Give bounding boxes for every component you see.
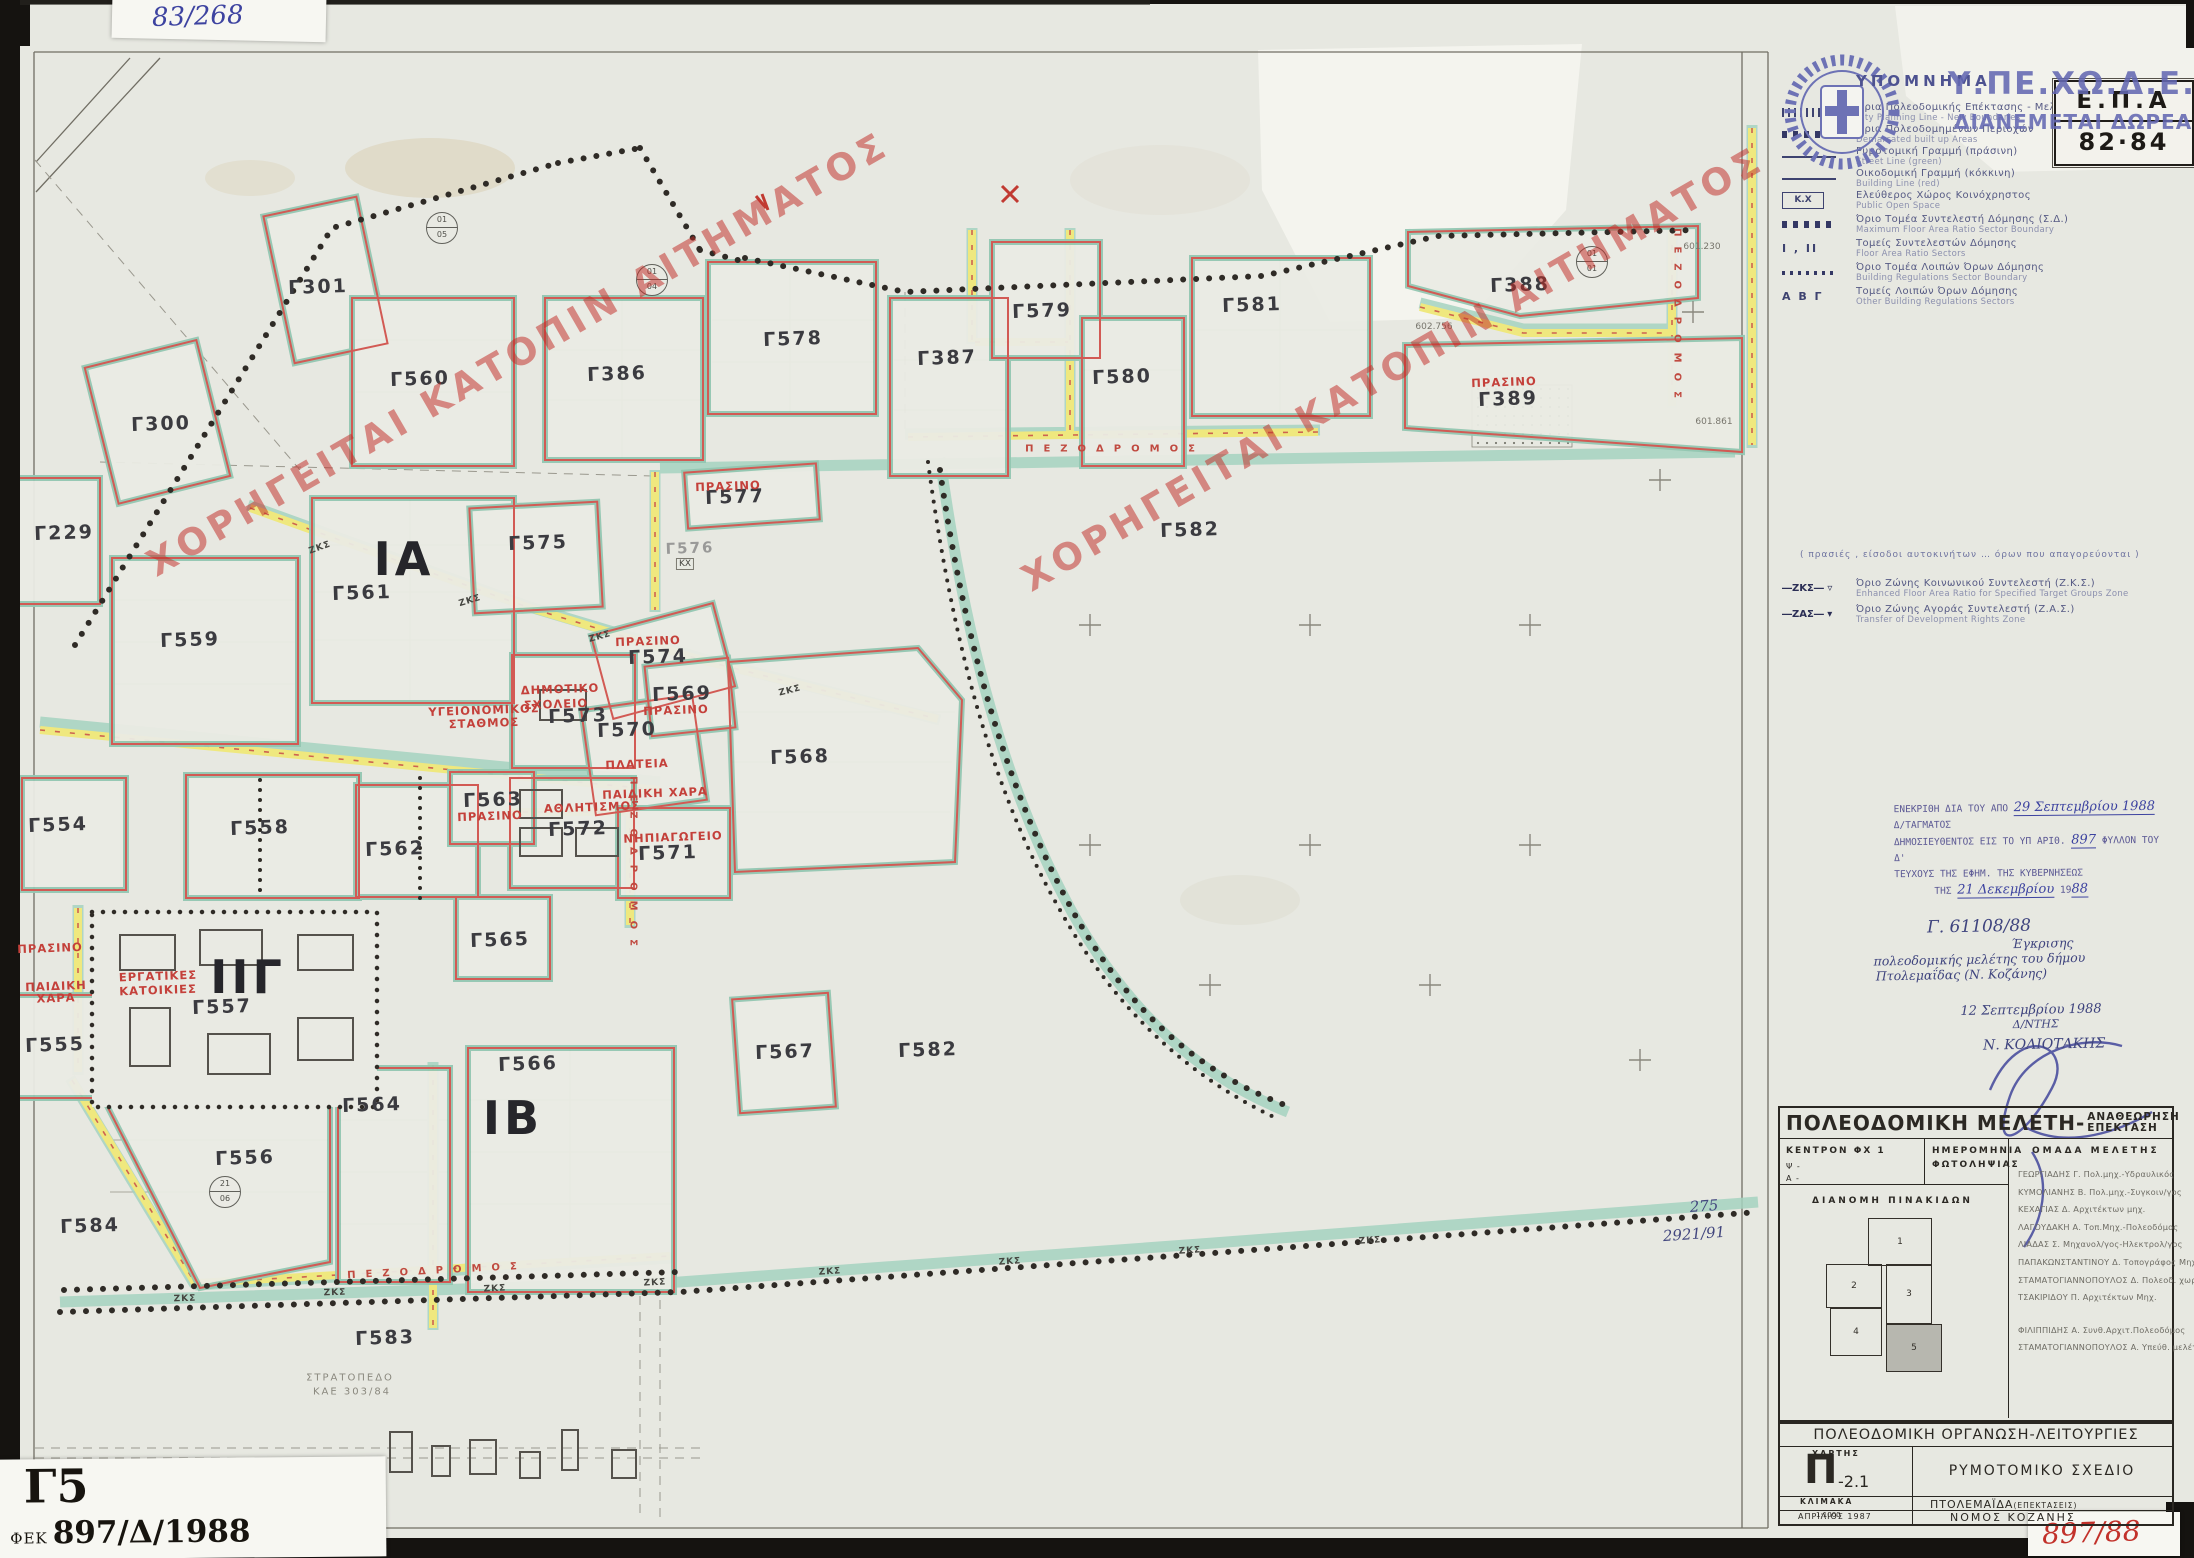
legend-item-text: Ελεύθερος Χώρος ΚοινόχρηστοςPublic Open …: [1856, 190, 2031, 211]
zone-boundary-icon: ―ΖΚΣ― ▿: [1782, 583, 1844, 594]
sheet-index-2: 2: [1826, 1264, 1882, 1308]
military-camp-code: ΚΑΕ 303/84: [313, 1387, 391, 1398]
block-label-Γ555-32: Γ555: [25, 1033, 86, 1057]
team-member: ΣΤΑΜΑΤΟΓΙΑΝΝΟΠΟΥΛΟΣ Α. Υπεύθ. μελέτης: [2018, 1339, 2170, 1357]
handwritten-annotation-0: 275: [1689, 1196, 1719, 1216]
block-label-Γ576-15: Γ576: [665, 538, 714, 558]
zone-symbol: ―ΖΑΣ― ▾: [1782, 609, 1832, 620]
legend-item-greek: Ελεύθερος Χώρος Κοινόχρηστος: [1856, 190, 2031, 201]
landuse-label-15: ΧΑΡΑ: [36, 990, 76, 1005]
legend-item: Όριο Τομέα Συντελεστή Δόμησης (Σ.Δ.)Maxi…: [1782, 214, 2068, 235]
stamp-l4b: 19: [2060, 885, 2072, 896]
block-label-Γ301-1: Γ301: [288, 275, 349, 299]
organization-title: ΠΟΛΕΟΔΟΜΙΚΗ ΟΡΓΑΝΩΣΗ-ΛΕΙΤΟΥΡΓΙΕΣ: [1780, 1424, 2172, 1447]
block-label-Γ581-8: Γ581: [1222, 293, 1283, 317]
landuse-label-16: ΠΡΑΣΙΝΟ: [1471, 374, 1537, 390]
block-label-Γ389-10: Γ389: [1478, 387, 1539, 411]
text-icon: Ι , ΙΙ: [1782, 242, 1818, 255]
cell-kentron: ΚΕΝΤΡΟΝ ΦΧ 1: [1786, 1146, 1886, 1156]
sheet-index-diagram: 12345: [1802, 1212, 2002, 1412]
legend-zone-text: Όριο Ζώνης Κοινωνικού Συντελεστή (Ζ.Κ.Σ.…: [1856, 578, 2129, 599]
landuse-label-13: ΠΡΑΣΙΝΟ: [17, 940, 83, 956]
landuse-label-12: ΚΑΤΟΙΚΙΕΣ: [119, 982, 197, 999]
block-label-Γ582-25: Γ582: [898, 1038, 959, 1062]
zks-boundary-label-0: ΖΚΣ: [174, 1294, 197, 1305]
legend-item-text: Τομείς Συντελεστών ΔόμησηςFloor Area Rat…: [1856, 238, 2017, 259]
prefecture: ΝΟΜΟΣ ΚΟΖΑΝΗΣ: [1950, 1511, 2076, 1524]
zks-boundary-label-4: ΖΚΣ: [818, 1266, 841, 1278]
note-role: Δ/ΝΤΗΣ: [2013, 1015, 2173, 1031]
block-label-Γ578-4: Γ578: [763, 327, 824, 351]
legend-item-text: Όριο Τομέα Συντελεστή Δόμησης (Σ.Δ.)Maxi…: [1856, 214, 2068, 235]
legend-note: ( πρασιές , είσοδοι αυτοκινήτων … όρων π…: [1800, 550, 2140, 560]
line-red-icon: [1782, 178, 1836, 180]
legend-item-greek: Τομείς Λοιπών Όρων Δόμησης: [1856, 286, 2018, 297]
legend-item-english: Public Open Space: [1856, 201, 2031, 211]
block-label-Γ580-7: Γ580: [1092, 365, 1153, 389]
public-open-space-label: ΚΧ: [676, 558, 694, 570]
military-camp-label: ΣΤΡΑΤΟΠΕΔΟ: [306, 1373, 394, 1384]
legend-item-english: Maximum Floor Area Ratio Sector Boundary: [1856, 225, 2068, 235]
zks-boundary-label-2: ΖΚΣ: [483, 1283, 506, 1294]
note-signatory: Ν. ΚΟΛΙΟΤΑΚΗΣ: [1983, 1034, 2173, 1053]
cell-date-label2: ΦΩΤΟΛΗΨΙΑΣ: [1932, 1160, 2020, 1170]
zone-symbol: ―ΖΚΣ― ▿: [1782, 583, 1832, 594]
legend-zone-greek: Όριο Ζώνης Κοινωνικού Συντελεστή (Ζ.Κ.Σ.…: [1856, 578, 2129, 589]
line-red-symbol-icon: [1782, 178, 1844, 180]
team-member: ΣΤΑΜΑΤΟΓΙΑΝΝΟΠΟΥΛΟΣ Δ. Πολεοδ. χωροτ.: [2018, 1272, 2170, 1290]
zone-label-ΙΙΓ: ΙΙΓ: [210, 950, 286, 1004]
legend-zone-english: Transfer of Development Rights Zone: [1856, 615, 2075, 625]
distribution-overprint: ΔΙΑΝΕΜΕΤΑΙ ΔΩΡΕΑΝ: [1954, 110, 2194, 134]
landuse-label-8: ΠΡΑΣΙΝΟ: [695, 478, 761, 494]
legend-item-english: Other Building Regulations Sectors: [1856, 297, 2018, 307]
dots-sm-symbol-icon: [1782, 271, 1844, 275]
block-label-Γ558-27: Γ558: [230, 816, 291, 840]
title-block-header: ΠΟΛΕΟΔΟΜΙΚΗ ΜΕΛΕΤΗ- ΑΝΑΘΕΩΡΗΣΗ ΕΠΕΚΤΑΣΗ: [1780, 1108, 2172, 1139]
stamp-l1b: Δ/ΤΑΓΜΑΤΟΣ: [1894, 820, 1951, 831]
landuse-label-6: ΑΘΛΗΤΙΣΜΟΣ: [544, 798, 641, 815]
dots-sm-icon: [1782, 271, 1836, 275]
block-label-Γ567-36: Γ567: [755, 1040, 816, 1064]
team-member: ΛΑΓΟΥΔΑΚΗ Α. Τοπ.Μηχ.-Πολεοδόμος: [2018, 1219, 2170, 1237]
box-symbol-icon: Κ.Χ: [1782, 192, 1844, 209]
stamp-l4a: ΤΗΣ: [1934, 886, 1951, 897]
stamp-l3: ΤΕΥΧΟΥΣ ΤΗΣ ΕΦΗΜ. ΤΗΣ ΚΥΒΕΡΝΗΣΕΩΣ: [1894, 868, 2083, 881]
title-block: ΠΟΛΕΟΔΟΜΙΚΗ ΜΕΛΕΤΗ- ΑΝΑΘΕΩΡΗΣΗ ΕΠΕΚΤΑΣΗ …: [1778, 1106, 2174, 1422]
zks-boundary-label-10: ΖΚΣ: [588, 629, 613, 645]
team-member: ΛΙΑΔΑΣ Σ. Μηχανολ/γος-Ηλεκτρολ/γος: [2018, 1236, 2170, 1254]
zks-boundary-label-1: ΖΚΣ: [324, 1288, 347, 1299]
dots-lg-icon: [1782, 221, 1836, 228]
block-label-Γ559-12: Γ559: [160, 628, 221, 652]
handwritten-annotation-1: 2921/91: [1662, 1223, 1725, 1245]
block-label-Γ579-6: Γ579: [1012, 299, 1073, 323]
sheet-index-1: 1: [1868, 1218, 1932, 1266]
map-code-number: -2.1: [1838, 1472, 1869, 1491]
circled-ref-top: 21: [210, 1177, 240, 1192]
circled-ref-0: 0105: [426, 212, 458, 244]
stamp-hand-date1: 29 Σεπτεμβρίου 1988: [2014, 799, 2155, 816]
stamp-hand-fek: 897: [2071, 832, 2096, 848]
zks-boundary-label-6: ΖΚΣ: [1178, 1245, 1201, 1257]
stamp-l1a: ΕΝΕΚΡΙΘΗ ΔΙΑ ΤΟΥ ΑΠΟ: [1894, 803, 2008, 815]
zone-label-ΙΑ: ΙΑ: [374, 532, 435, 586]
legend-item-greek: Τομείς Συντελεστών Δόμησης: [1856, 238, 2017, 249]
circled-ref-bottom: 06: [210, 1192, 240, 1206]
team-member: ΚΥΜΟΛΙΑΝΗΣ Β. Πολ.μηχ.-Συγκοιν/γος: [2018, 1184, 2170, 1202]
team-list: ΓΕΩΡΓΙΑΔΗΣ Γ. Πολ.μηχ.-ΥδραυλικόςΚΥΜΟΛΙΑ…: [2018, 1166, 2170, 1357]
study-title: ΠΟΛΕΟΔΟΜΙΚΗ ΜΕΛΕΤΗ-: [1786, 1111, 2085, 1135]
block-label-Γ566-35: Γ566: [498, 1052, 559, 1076]
city-suffix: (ΕΠΕΚΤΑΣΕΙΣ): [2013, 1501, 2077, 1510]
box-icon: Κ.Χ: [1782, 192, 1824, 209]
pedestrian-road-label-1: ΠΕΖΟΔΡΟΜΟΣ: [347, 1261, 527, 1281]
dots-lg-symbol-icon: [1782, 221, 1844, 228]
zone-label-ΙΒ: ΙΒ: [483, 1091, 543, 1145]
text-symbol-icon: Ι , ΙΙ: [1782, 242, 1844, 255]
stamp-l2a: ΔΗΜΟΣΙΕΥΘΕΝΤΟΣ ΕΙΣ ΤΟ ΥΠ ΑΡΙΘ.: [1894, 836, 2066, 848]
block-label-Γ565-30: Γ565: [470, 928, 531, 952]
legend-item-greek: Όριο Τομέα Συντελεστή Δόμησης (Σ.Δ.): [1856, 214, 2068, 225]
block-label-Γ583-38: Γ583: [355, 1326, 416, 1350]
sheet-index-5: 5: [1886, 1324, 1942, 1372]
zks-boundary-label-9: ΖΚΣ: [458, 593, 483, 609]
sheet-index-3: 3: [1886, 1264, 1932, 1324]
team-member: ΚΕΧΑΓΙΑΣ Δ. Αρχιτέκτων μηχ.: [2018, 1201, 2170, 1219]
greek-state-emblem: [1780, 50, 1904, 174]
survey-mark-0: 601.230: [1683, 242, 1720, 252]
pedestrian-road-label-3: ΠΕΖΟΔΡΟΜΟΣ: [1672, 228, 1683, 408]
legend-item-english: Floor Area Ratio Sectors: [1856, 249, 2017, 259]
text-symbol-icon: Α Β Γ: [1782, 290, 1844, 303]
map-type: ΡΥΜΟΤΟΜΙΚΟ ΣΧΕΔΙΟ: [1912, 1446, 2172, 1496]
team-member: ΤΣΑΚΙΡΙΔΟΥ Π. Αρχιτέκτων Μηχ.: [2018, 1289, 2170, 1307]
landuse-label-17: ΠΡΑΣΙΝΟ: [457, 808, 523, 824]
legend-zone-item: ―ΖΑΣ― ▾Όριο Ζώνης Αγοράς Συντελεστή (Ζ.Α…: [1782, 604, 2075, 625]
block-label-Γ562-28: Γ562: [365, 837, 426, 861]
block-label-Γ570-20: Γ570: [597, 718, 658, 742]
block-label-Γ300-0: Γ300: [131, 412, 192, 436]
scale-label: ΚΛΙΜΑΚΑ: [1800, 1497, 1853, 1506]
circled-ref-bottom: 05: [427, 228, 457, 242]
block-label-Γ229-11: Γ229: [34, 521, 95, 545]
approval-stamp: ΕΝΕΚΡΙΘΗ ΔΙΑ ΤΟΥ ΑΠΟ 29 Σεπτεμβρίου 1988…: [1894, 799, 2163, 900]
team-header: ΟΜΑΔΑ ΜΕΛΕΤΗΣ: [2032, 1146, 2160, 1156]
landuse-label-0: ΠΡΑΣΙΝΟ: [615, 633, 681, 649]
block-label-Γ564-34: Γ564: [342, 1093, 403, 1117]
legend-item: Κ.ΧΕλεύθερος Χώρος ΚοινόχρηστοςPublic Op…: [1782, 190, 2031, 211]
landuse-label-1: ΔΗΜΟΤΙΚΟ: [520, 681, 599, 698]
circled-ref-2: 2106: [209, 1176, 241, 1208]
scanned-map-sheet: Γ300Γ301Γ560Γ386Γ578Γ387Γ579Γ580Γ581Γ388…: [0, 0, 2194, 1558]
circled-ref-top: 01: [427, 213, 457, 228]
legend-zone-items: ―ΖΚΣ― ▿Όριο Ζώνης Κοινωνικού Συντελεστή …: [1782, 570, 2188, 640]
block-label-Γ584-37: Γ584: [60, 1214, 121, 1238]
cell-date-label1: ΗΜΕΡΟΜΗΝΙΑ: [1932, 1146, 2023, 1156]
legend-zone-greek: Όριο Ζώνης Αγοράς Συντελεστή (Ζ.Α.Σ.): [1856, 604, 2075, 615]
ministry-overprint: Υ.ΠΕ.ΧΩ.Δ.Ε.: [1948, 66, 2194, 102]
zks-boundary-label-3: ΖΚΣ: [643, 1277, 666, 1288]
block-label-Γ568-21: Γ568: [770, 745, 831, 769]
landuse-label-4: ΠΛΑΤΕΙΑ: [605, 756, 669, 772]
block-label-Γ572-22: Γ572: [548, 817, 609, 841]
zks-boundary-label-8: ΖΚΣ: [308, 539, 333, 556]
sheet-title-block: ΠΟΛΕΟΔΟΜΙΚΗ ΟΡΓΑΝΩΣΗ-ΛΕΙΤΟΥΡΓΙΕΣ ΧΑΡΤΗΣ …: [1778, 1422, 2174, 1526]
cell-alpha: Α -: [1786, 1174, 1800, 1183]
map-date: ΑΠΡΙΛΙΟΣ 1987: [1798, 1512, 1872, 1521]
legend-item-english: Building Line (red): [1856, 179, 2015, 189]
text-icon: Α Β Γ: [1782, 290, 1824, 303]
team-member: ΦΙΛΙΠΠΙΔΗΣ Α. Συνθ.Αρχιτ.Πολεοδόμος: [2018, 1322, 2170, 1340]
pedestrian-road-label-0: ΠΕΖΟΔΡΟΜΟΣ: [1025, 444, 1205, 455]
block-label-Γ574-17: Γ574: [628, 645, 689, 669]
legend-item: Όριο Τομέα Λοιπών Όρων ΔόμησηςBuilding R…: [1782, 262, 2044, 283]
zks-boundary-label-7: ΖΚΣ: [1358, 1235, 1381, 1247]
landuse-label-3: ΠΡΑΣΙΝΟ: [643, 702, 709, 718]
legend-item: Α Β ΓΤομείς Λοιπών Όρων ΔόμησηςOther Bui…: [1782, 286, 2018, 307]
sheet-index-4: 4: [1830, 1308, 1882, 1356]
city: ΠΤΟΛΕΜΑΪΔΑ: [1930, 1498, 2013, 1511]
block-label-Γ575-14: Γ575: [508, 531, 569, 555]
legend-zone-item: ―ΖΚΣ― ▿Όριο Ζώνης Κοινωνικού Συντελεστή …: [1782, 578, 2129, 599]
zks-boundary-label-11: ΖΚΣ: [778, 683, 802, 698]
city-name: ΠΤΟΛΕΜΑΪΔΑ(ΕΠΕΚΤΑΣΕΙΣ): [1930, 1498, 2077, 1511]
block-label-Γ556-33: Γ556: [215, 1146, 276, 1170]
zks-boundary-label-5: ΖΚΣ: [998, 1256, 1021, 1268]
map-code-letter: Π: [1804, 1450, 1837, 1490]
legend-item-text: Τομείς Λοιπών Όρων ΔόμησηςOther Building…: [1856, 286, 2018, 307]
legend-item-greek: Όριο Τομέα Λοιπών Όρων Δόμησης: [1856, 262, 2044, 273]
pedestrian-road-label-2: ΠΕΖΟΔΡΟΜΟΣ: [628, 776, 639, 956]
legend-zone-text: Όριο Ζώνης Αγοράς Συντελεστή (Ζ.Α.Σ.)Tra…: [1856, 604, 2075, 625]
stamp-hand-year: 88: [2071, 881, 2088, 897]
block-label-Γ387-5: Γ387: [917, 346, 978, 370]
block-label-Γ554-26: Γ554: [28, 813, 89, 837]
team-member: ΠΑΠΑΚΩΝΣΤΑΝΤΙΝΟΥ Δ. Τοπογράφος Μηχ.: [2018, 1254, 2170, 1272]
survey-mark-2: 601.861: [1695, 417, 1732, 427]
legend-item: Ι , ΙΙΤομείς Συντελεστών ΔόμησηςFloor Ar…: [1782, 238, 2017, 259]
block-label-Γ386-3: Γ386: [587, 362, 648, 386]
stamp-hand-date2: 21 Δεκεμβρίου: [1957, 882, 2054, 899]
study-title-extension: ΕΠΕΚΤΑΣΗ: [2087, 1123, 2180, 1134]
team-member: ΓΕΩΡΓΙΑΔΗΣ Γ. Πολ.μηχ.-Υδραυλικός: [2018, 1166, 2170, 1184]
handwritten-note: Γ. 61108/88 Έγκρισης πολεοδομικής μελέτη…: [1861, 913, 2173, 1055]
zone-boundary-icon: ―ΖΑΣ― ▾: [1782, 609, 1844, 620]
legend-zone-english: Enhanced Floor Area Ratio for Specified …: [1856, 589, 2129, 599]
legend-item-english: Building Regulations Sector Boundary: [1856, 273, 2044, 283]
cell-psi: Ψ -: [1786, 1162, 1801, 1171]
sheet-index-title: ΔΙΑΝΟΜΗ ΠΙΝΑΚΙΔΩΝ: [1812, 1196, 1973, 1206]
landuse-label-10: ΣΤΑΘΜΟΣ: [449, 715, 520, 731]
legend-item-text: Όριο Τομέα Λοιπών Όρων ΔόμησηςBuilding R…: [1856, 262, 2044, 283]
